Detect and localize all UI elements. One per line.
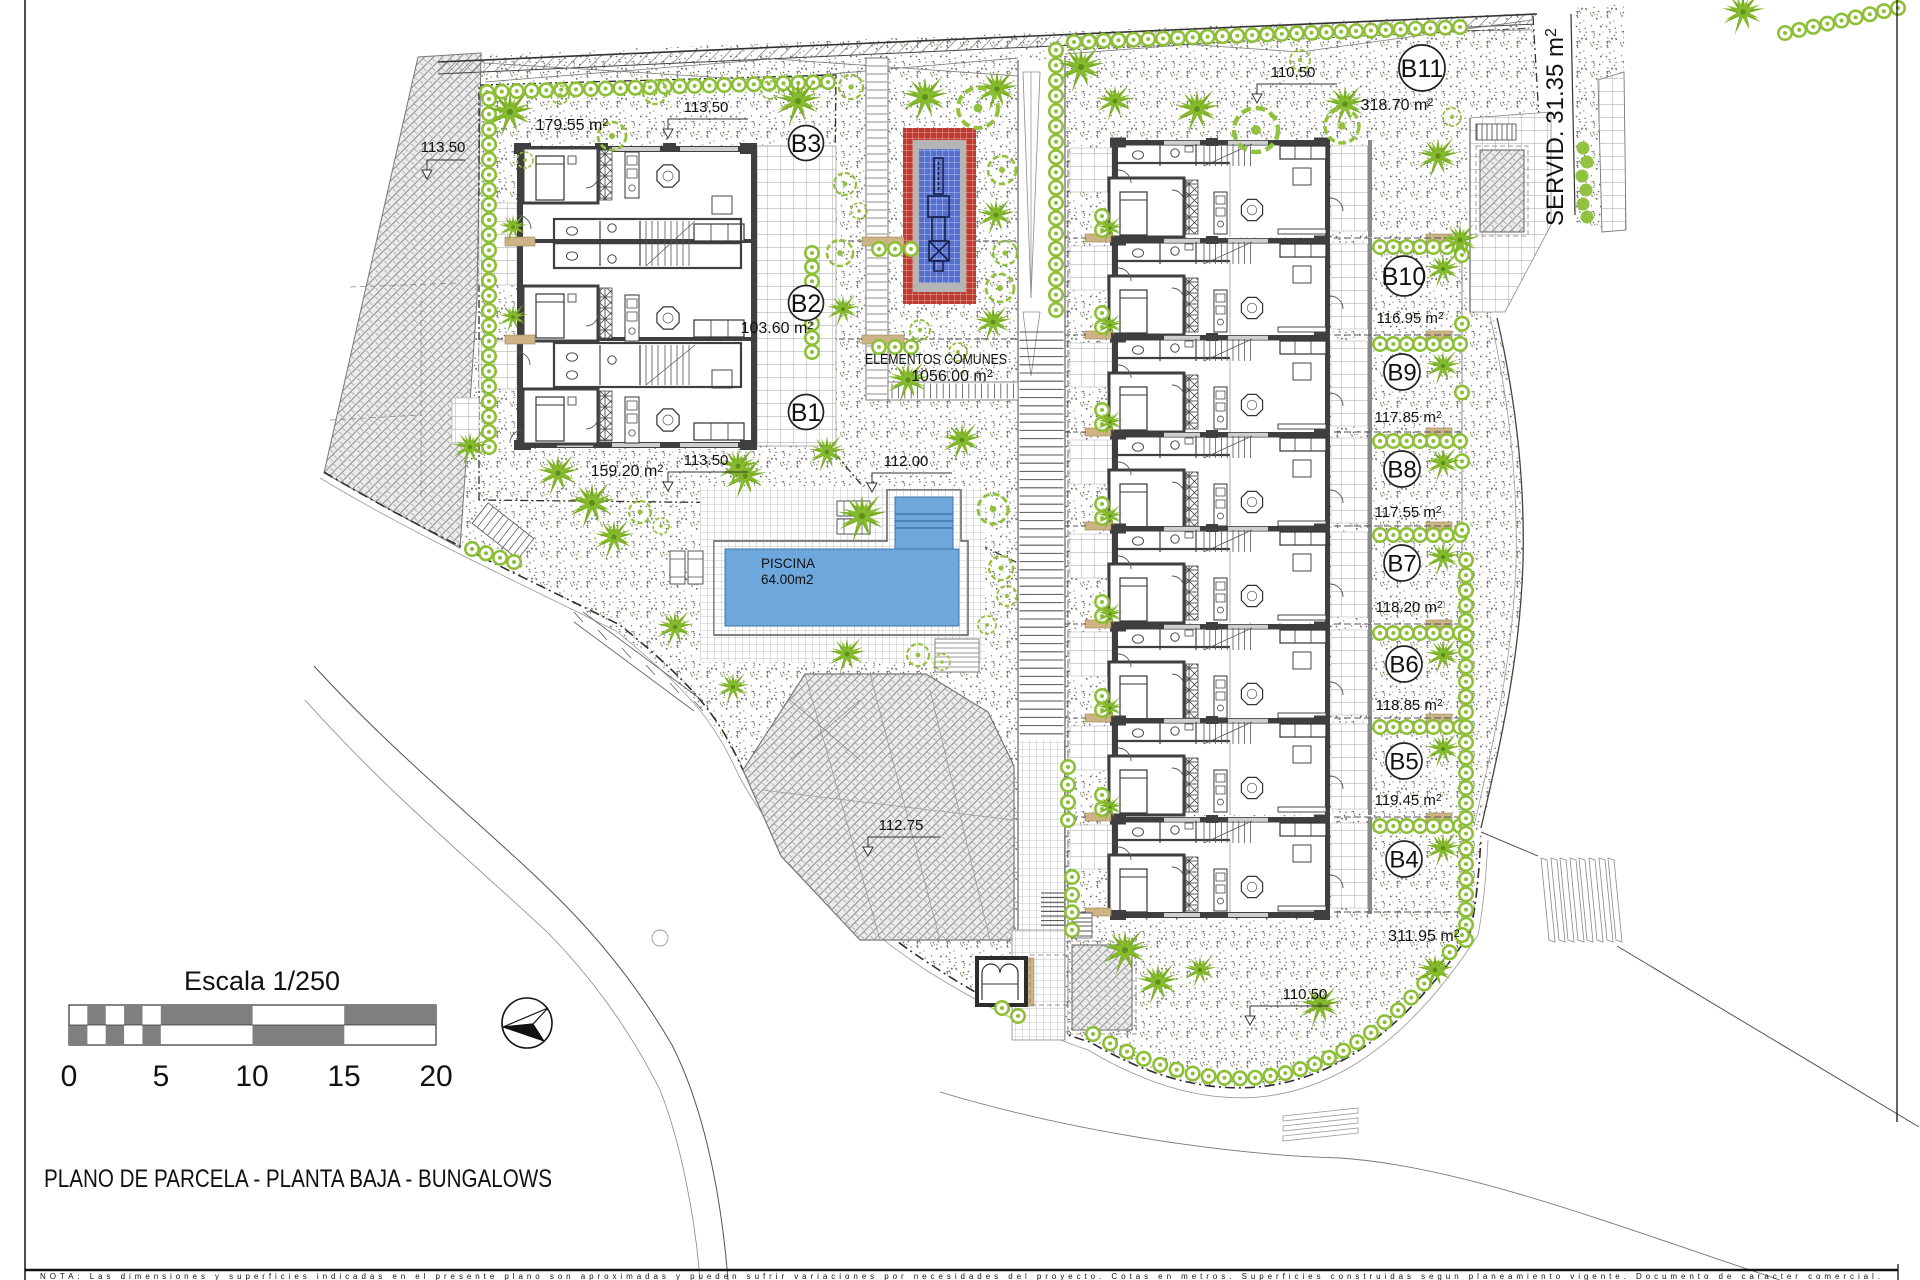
svg-text:159.20 m2: 159.20 m2 (591, 463, 664, 480)
svg-text:B10: B10 (1382, 263, 1426, 291)
svg-text:318.70 m2: 318.70 m2 (1361, 97, 1434, 114)
svg-text:B1: B1 (791, 399, 822, 427)
svg-text:179.55 m2: 179.55 m2 (536, 117, 609, 134)
svg-text:B4: B4 (1389, 847, 1418, 874)
svg-text:Escala 1/250: Escala 1/250 (184, 966, 340, 996)
svg-text:110.50: 110.50 (1283, 986, 1328, 1003)
svg-text:113.50: 113.50 (684, 452, 729, 469)
svg-text:1056.00 m2: 1056.00 m2 (911, 368, 993, 385)
svg-text:10: 10 (235, 1060, 268, 1093)
svg-text:5: 5 (153, 1060, 170, 1093)
svg-text:20: 20 (419, 1060, 452, 1093)
svg-text:B7: B7 (1387, 551, 1416, 578)
svg-text:PISCINA: PISCINA (761, 556, 815, 571)
svg-text:B8: B8 (1387, 457, 1416, 484)
svg-text:B5: B5 (1389, 749, 1418, 776)
svg-text:SERVID. 31.35 m2: SERVID. 31.35 m2 (1542, 28, 1569, 226)
svg-text:119.45 m2: 119.45 m2 (1375, 792, 1442, 809)
svg-text:PLANO DE PARCELA - PLANTA BAJA: PLANO DE PARCELA - PLANTA BAJA - BUNGALO… (44, 1165, 552, 1193)
svg-text:B11: B11 (1401, 55, 1444, 83)
svg-text:311.95 m2: 311.95 m2 (1388, 928, 1460, 945)
svg-text:B2: B2 (791, 290, 822, 318)
svg-text:117.55 m2: 117.55 m2 (1375, 504, 1442, 521)
svg-text:118.20 m2: 118.20 m2 (1376, 599, 1443, 616)
svg-text:64.00m2: 64.00m2 (761, 572, 814, 587)
svg-text:B6: B6 (1389, 652, 1418, 679)
svg-text:118.85 m2: 118.85 m2 (1376, 697, 1443, 714)
svg-text:112.00: 112.00 (884, 453, 929, 470)
svg-text:B9: B9 (1387, 360, 1416, 387)
svg-text:NOTA: Las dimensiones y superf: NOTA: Las dimensiones y superficies indi… (40, 1272, 1880, 1280)
svg-text:113.50: 113.50 (421, 139, 466, 156)
svg-text:0: 0 (61, 1060, 78, 1093)
svg-text:116.95 m2: 116.95 m2 (1377, 310, 1444, 327)
svg-text:117.85 m2: 117.85 m2 (1375, 409, 1442, 426)
svg-text:15: 15 (327, 1060, 360, 1093)
svg-text:113.50: 113.50 (684, 99, 729, 116)
svg-text:110.50: 110.50 (1271, 64, 1316, 81)
svg-text:B3: B3 (791, 130, 822, 158)
svg-text:ELEMENTOS COMUNES: ELEMENTOS COMUNES (865, 351, 1007, 368)
svg-text:112.75: 112.75 (879, 817, 924, 834)
svg-text:103.60 m2: 103.60 m2 (741, 320, 814, 337)
